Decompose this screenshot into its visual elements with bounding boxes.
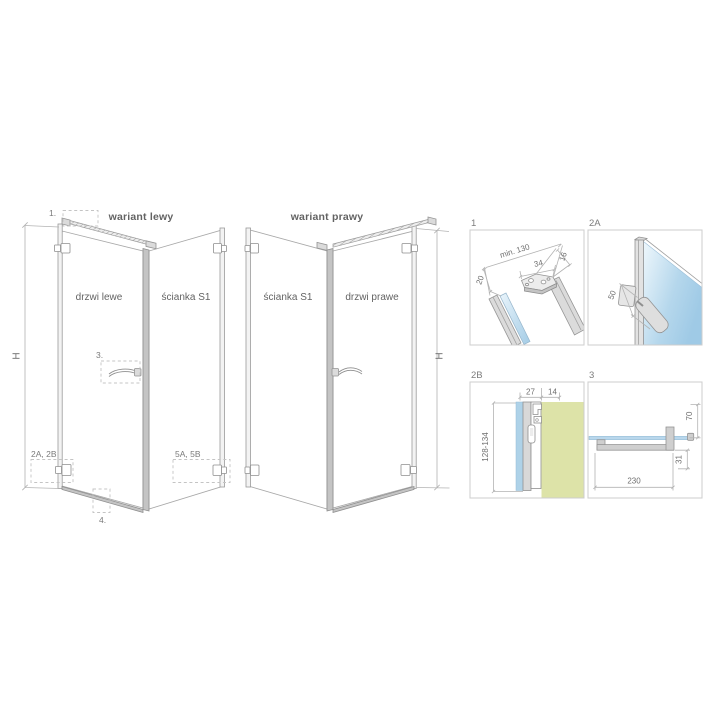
left-variant-title: wariant lewy <box>108 211 174 223</box>
wall-section <box>542 402 585 498</box>
strut-wall-bracket <box>428 217 436 225</box>
callout-3: 3. <box>96 350 103 360</box>
hinge-back-plate <box>618 285 636 307</box>
hinge-profile <box>635 240 644 345</box>
callout-4: 4. <box>99 515 106 525</box>
dim-31: 31 <box>675 455 684 464</box>
profile-outer <box>523 402 531 491</box>
right-door-label: drzwi prawe <box>345 292 399 303</box>
glass-section <box>589 436 690 439</box>
corner-profile <box>327 249 333 512</box>
dim-27: 27 <box>526 388 535 397</box>
left-variant-diagram: H 1. 3. 2A, 2B 5A, 5B 4. wariant lewy dr… <box>12 208 231 525</box>
right-variant-title: wariant prawy <box>290 211 364 223</box>
left-door-hinge-bottom <box>56 465 72 476</box>
page: H 1. 3. 2A, 2B 5A, 5B 4. wariant lewy dr… <box>0 0 720 720</box>
profile-inner <box>531 402 541 489</box>
right-wall-label: ścianka S1 <box>264 292 313 303</box>
left-wall-profile <box>58 224 62 489</box>
dim-128-134: 128-134 <box>481 432 490 462</box>
left-fixed-wall-glass <box>149 230 222 509</box>
corner-cap <box>146 241 156 249</box>
right-height-label: H <box>435 352 446 359</box>
detail-panels: min. 130 34 16 20 50 <box>470 218 702 498</box>
left-s1-wall-profile <box>220 228 225 487</box>
dim-230: 230 <box>627 477 641 486</box>
corner-profile <box>143 249 149 512</box>
glass-section <box>516 402 523 491</box>
right-height-dimension: H <box>416 228 450 490</box>
detail-1-label: 1 <box>471 218 476 229</box>
left-wall-label: ścianka S1 <box>162 292 211 303</box>
callout-2ab: 2A, 2B <box>31 449 57 459</box>
right-wall-profile <box>412 224 416 489</box>
technical-drawing-svg: H 1. 3. 2A, 2B 5A, 5B 4. wariant lewy dr… <box>0 0 720 720</box>
callout-5ab: 5A, 5B <box>175 449 201 459</box>
right-door-hinge-top <box>402 244 418 254</box>
left-door-label: drzwi lewe <box>76 292 123 303</box>
dim-70: 70 <box>685 411 694 420</box>
callout-1: 1. <box>49 208 56 218</box>
right-s1-wall-profile <box>246 228 251 487</box>
right-fixed-wall-glass <box>250 230 327 509</box>
right-variant-diagram: H wariant prawy ścianka S1 drzwi prawe <box>245 211 450 513</box>
detail-3-label: 3 <box>589 370 594 381</box>
dim-14: 14 <box>548 388 557 397</box>
left-height-label: H <box>12 352 23 359</box>
detail-2a-label: 2A <box>589 218 601 229</box>
right-door-hinge-bottom <box>401 465 417 476</box>
detail-2b-label: 2B <box>471 370 483 381</box>
left-door-hinge-top <box>55 244 71 254</box>
